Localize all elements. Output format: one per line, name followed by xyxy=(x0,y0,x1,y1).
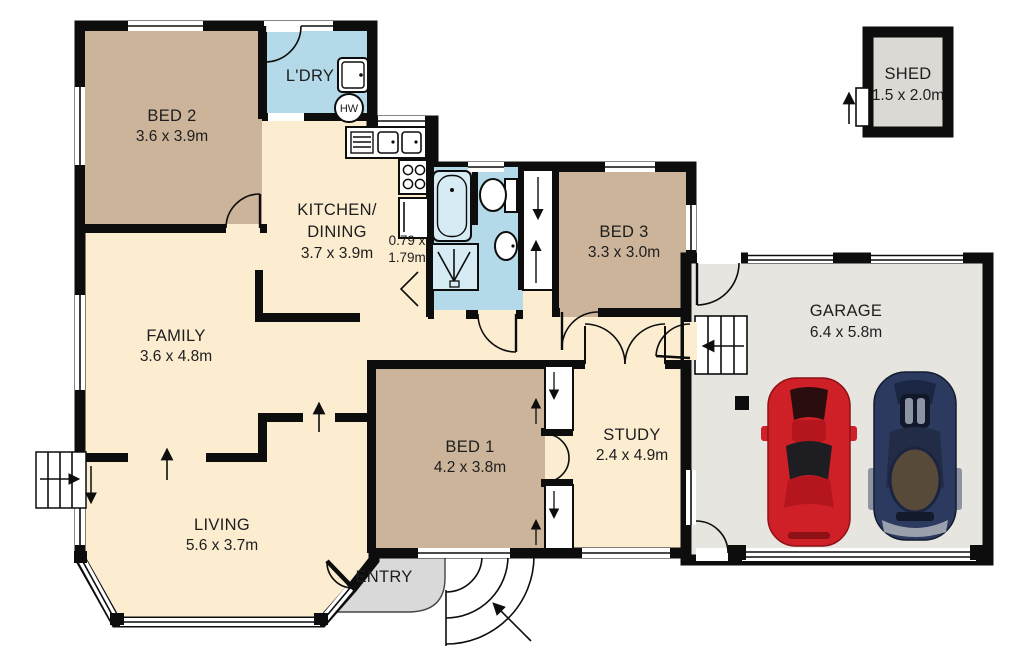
living-label: LIVING xyxy=(194,516,250,534)
hot-water-label: HW xyxy=(340,103,359,115)
wc-size-1: 0.79 x xyxy=(389,233,426,248)
wc-size-2: 1.79m xyxy=(388,250,426,265)
bathtub-icon xyxy=(433,171,471,241)
shed-label: SHED xyxy=(884,65,931,83)
room-bed1 xyxy=(371,367,545,548)
family-label: FAMILY xyxy=(146,327,205,345)
garage-stairs-icon xyxy=(695,316,747,374)
kitchen-size: 3.7 x 3.9m xyxy=(301,245,373,262)
laundry-tub-icon xyxy=(338,58,368,92)
bed1-size: 4.2 x 3.8m xyxy=(434,459,506,476)
hall-cupboards xyxy=(523,170,555,290)
bed1-label: BED 1 xyxy=(445,438,494,456)
shed-size: 1.5 x 2.0m xyxy=(872,87,944,104)
room-bed3 xyxy=(557,172,686,311)
floor-plan-canvas: HW BED 2 3.6 x 3.9m L'DRY KITCHEN/ DININ… xyxy=(0,0,1022,665)
study-size: 2.4 x 4.9m xyxy=(596,447,668,464)
blue-sports-car-icon xyxy=(868,372,962,540)
basin-icon xyxy=(495,232,517,260)
bed2-size: 3.6 x 3.9m xyxy=(136,128,208,145)
red-sports-car-icon xyxy=(761,378,857,546)
family-size: 3.6 x 4.8m xyxy=(140,348,212,365)
entry-steps-icon xyxy=(446,556,536,646)
shower-icon xyxy=(432,244,478,290)
toilet-icon xyxy=(480,179,517,212)
hot-water-icon: HW xyxy=(335,94,363,122)
kitchen-label-2: DINING xyxy=(307,223,367,241)
entry-label: ENTRY xyxy=(355,568,412,586)
bed2-label: BED 2 xyxy=(147,107,196,125)
garage-label: GARAGE xyxy=(810,302,882,320)
bed3-size: 3.3 x 3.0m xyxy=(588,244,660,261)
bed3-label: BED 3 xyxy=(599,223,648,241)
kitchen-label-1: KITCHEN/ xyxy=(297,201,377,219)
study-label: STUDY xyxy=(603,426,660,444)
kitchen-sink-icon xyxy=(346,127,426,158)
garage-size: 6.4 x 5.8m xyxy=(810,324,882,341)
kitchen-bench xyxy=(399,198,428,238)
side-stairs-icon xyxy=(36,452,91,508)
stove-icon xyxy=(399,160,427,194)
floor-plan: HW BED 2 3.6 x 3.9m L'DRY KITCHEN/ DININ… xyxy=(0,0,1022,665)
living-size: 5.6 x 3.7m xyxy=(186,537,258,554)
laundry-label: L'DRY xyxy=(286,67,334,85)
